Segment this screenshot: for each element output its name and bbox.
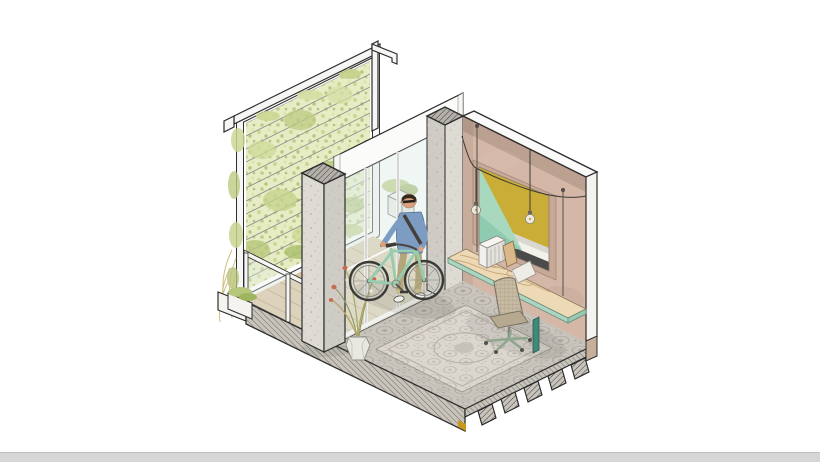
desk-leg [533, 317, 539, 353]
back-wall-end-cap [586, 172, 597, 342]
man-hand-left [418, 246, 423, 251]
isometric-room-illustration [0, 0, 820, 462]
man-hand-right [380, 241, 385, 246]
bike-saddle [386, 244, 396, 246]
illustration-canvas [0, 0, 820, 462]
concrete-column [299, 163, 351, 357]
man-sunglasses [403, 201, 415, 202]
bottom-bar [0, 452, 820, 462]
apex-post [372, 41, 378, 131]
concrete-pilaster [427, 107, 463, 299]
wall-footer [586, 336, 597, 361]
